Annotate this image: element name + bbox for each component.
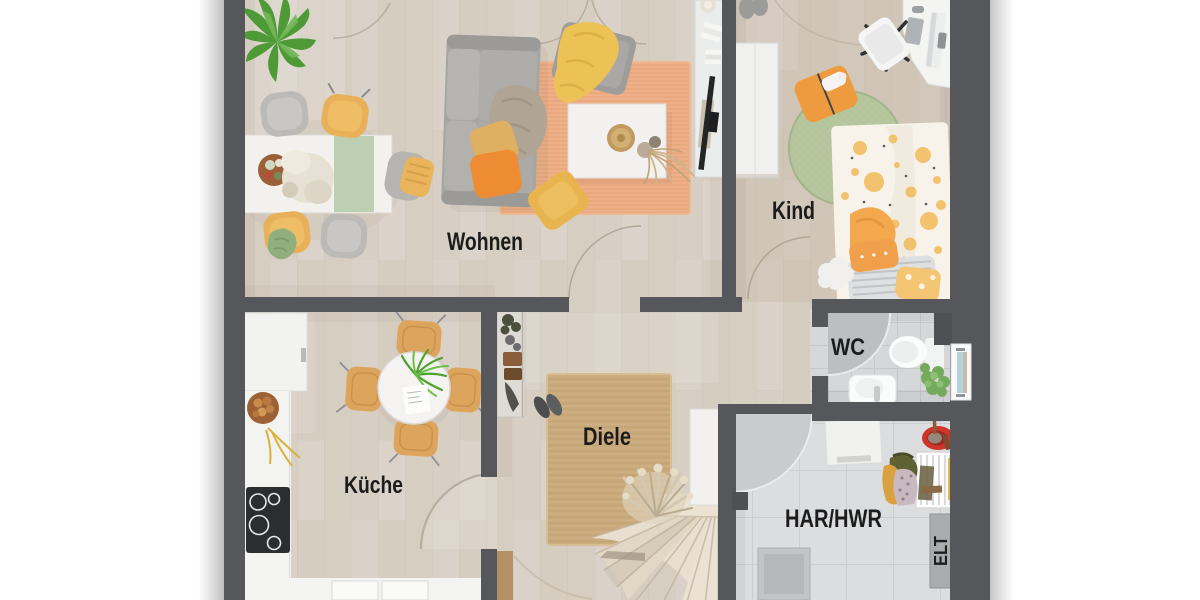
svg-text:Küche: Küche xyxy=(344,472,403,499)
svg-text:WC: WC xyxy=(831,334,865,361)
svg-text:Diele: Diele xyxy=(583,423,631,451)
svg-text:HAR/HWR: HAR/HWR xyxy=(785,505,882,533)
svg-text:Kind: Kind xyxy=(772,197,815,225)
svg-text:Wohnen: Wohnen xyxy=(447,228,523,256)
svg-text:ELT: ELT xyxy=(931,536,951,566)
